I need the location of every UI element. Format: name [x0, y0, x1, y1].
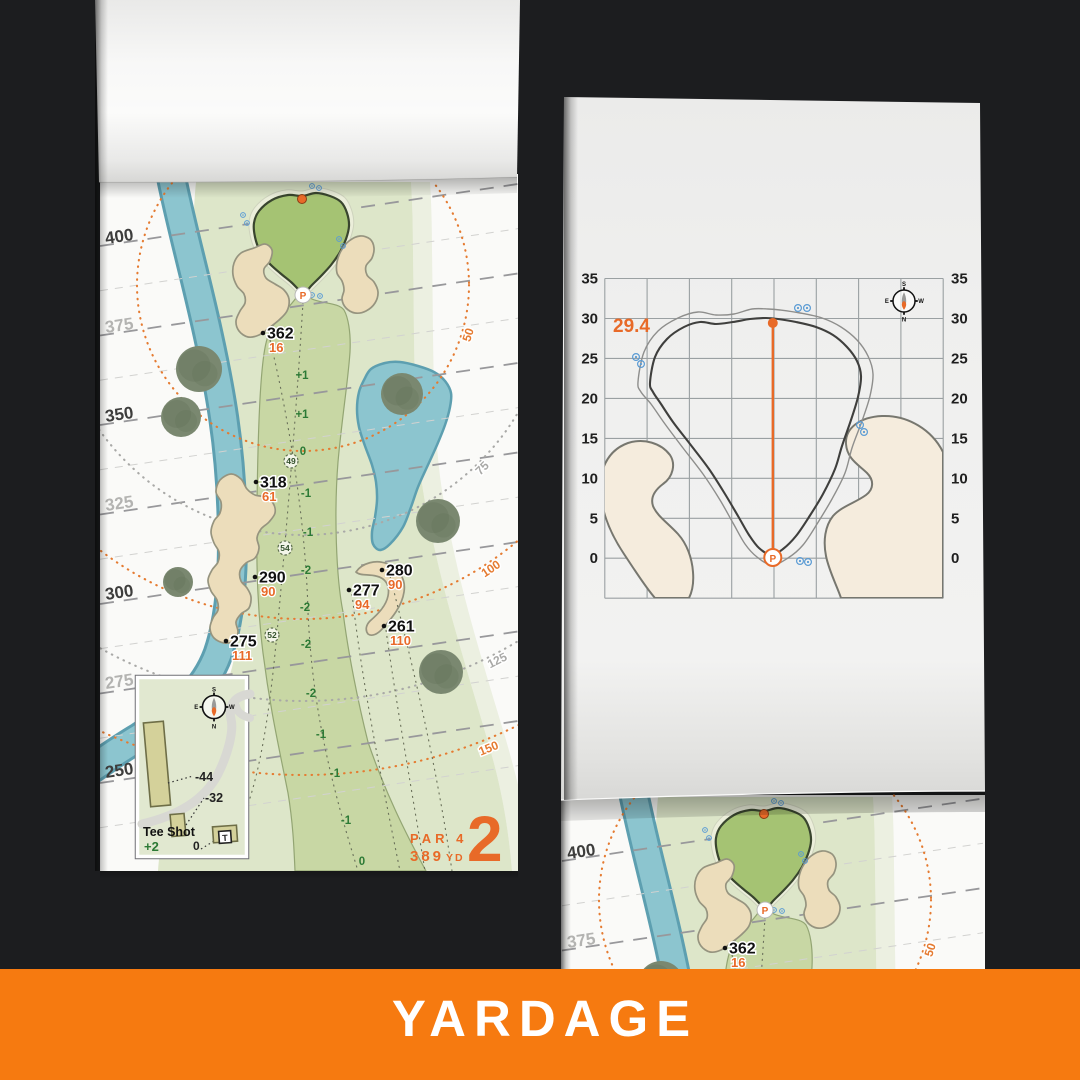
svg-text:10: 10 [951, 470, 968, 487]
svg-text:YARDAGE: YARDAGE [392, 990, 698, 1047]
svg-text:20: 20 [581, 390, 598, 407]
svg-text:15: 15 [581, 430, 598, 447]
svg-text:W: W [918, 299, 924, 305]
svg-text:10: 10 [581, 470, 598, 487]
svg-text:5: 5 [590, 510, 598, 527]
svg-text:30: 30 [951, 311, 968, 328]
svg-text:0: 0 [590, 550, 598, 567]
svg-text:E: E [885, 299, 889, 305]
svg-text:29.4: 29.4 [613, 316, 650, 337]
svg-text:0: 0 [951, 550, 959, 567]
svg-text:P: P [769, 554, 776, 565]
svg-text:25: 25 [581, 350, 598, 367]
svg-text:25: 25 [951, 350, 968, 367]
svg-text:5: 5 [951, 510, 959, 527]
svg-text:35: 35 [951, 271, 968, 288]
svg-text:15: 15 [951, 430, 968, 447]
svg-text:N: N [902, 317, 906, 323]
svg-text:30: 30 [581, 311, 598, 328]
svg-text:20: 20 [951, 390, 968, 407]
svg-text:S: S [902, 282, 906, 288]
svg-text:35: 35 [581, 271, 598, 288]
